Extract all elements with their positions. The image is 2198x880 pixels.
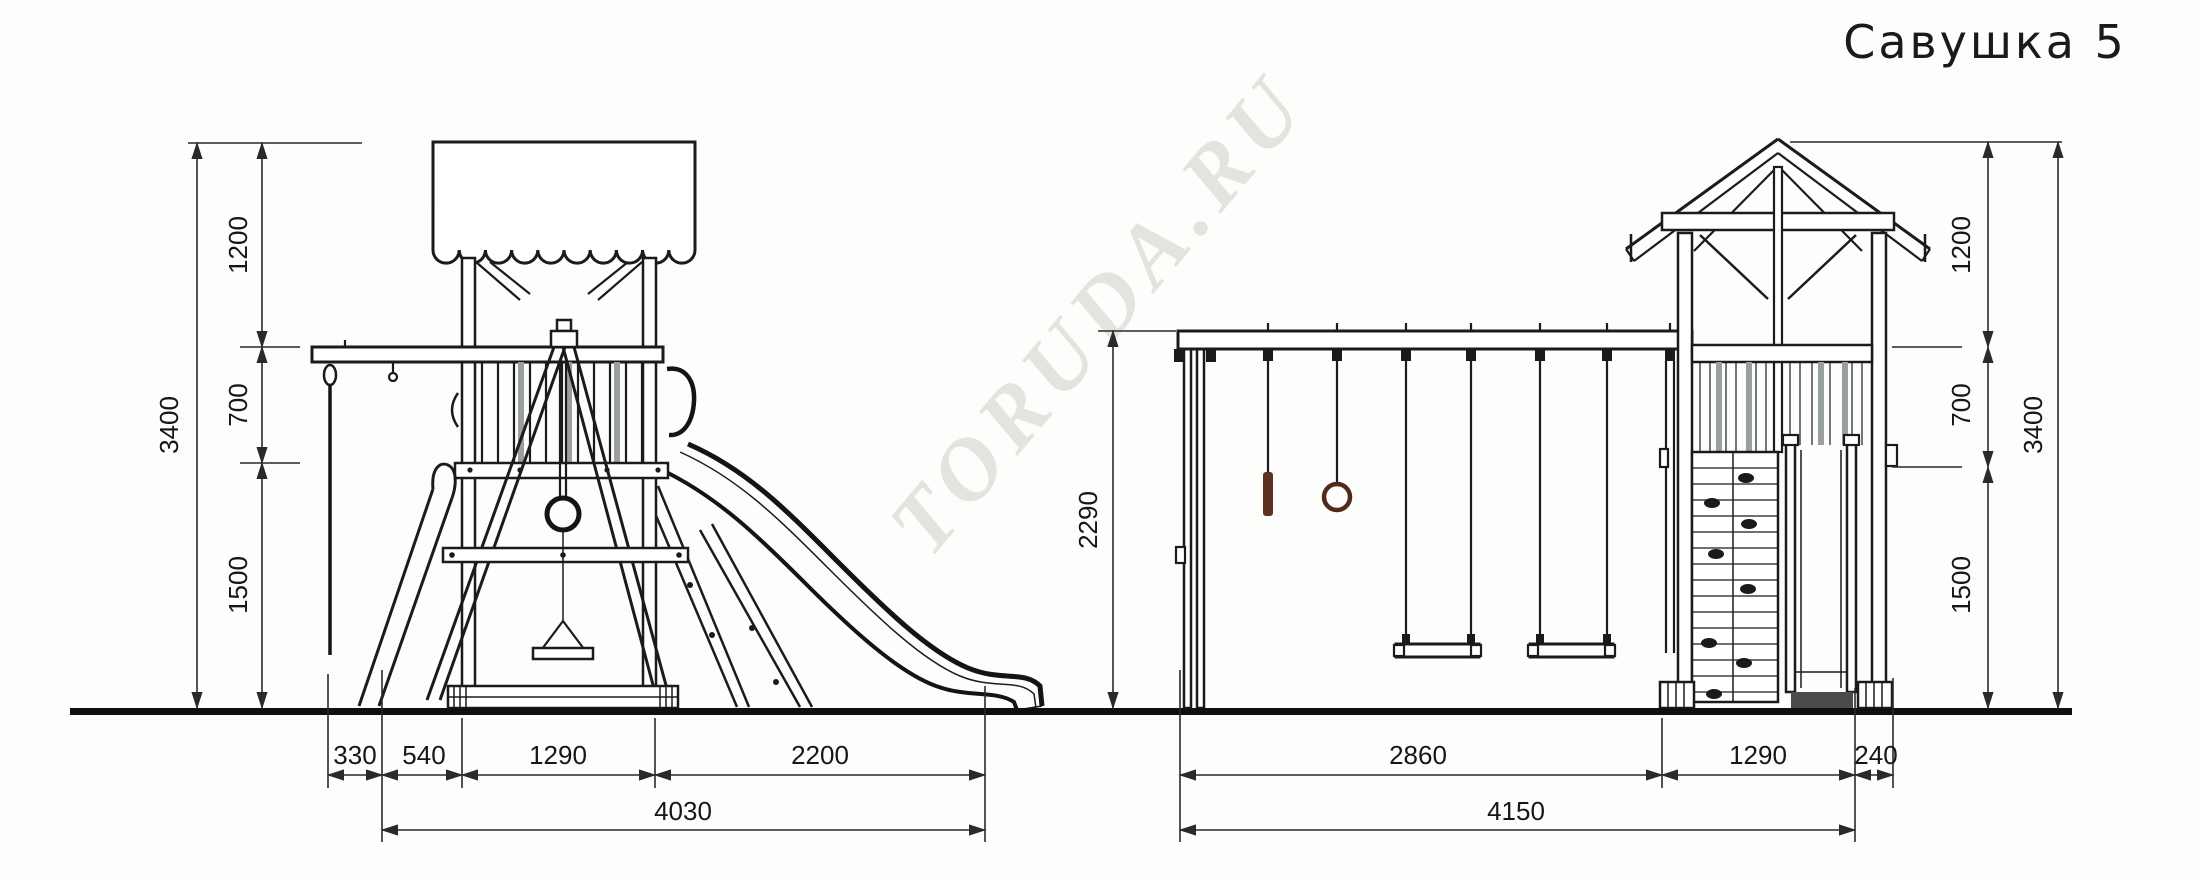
dim-right-tower-width: 1290 bbox=[1729, 740, 1787, 770]
dim-left-tower-width: 1290 bbox=[529, 740, 587, 770]
swing-seat-2 bbox=[1528, 361, 1615, 657]
dim-right-bottom: 1500 bbox=[1946, 556, 1976, 614]
left-structure bbox=[312, 142, 1042, 710]
swing-end-post bbox=[1174, 349, 1216, 708]
drawing-title: Савушка 5 bbox=[1843, 15, 2127, 69]
slide-support-struts bbox=[646, 486, 812, 707]
climbing-wall bbox=[1692, 452, 1778, 702]
dim-swing-section: 2860 bbox=[1389, 740, 1447, 770]
dim-rear-offset: 240 bbox=[1854, 740, 1897, 770]
canopy bbox=[433, 142, 695, 263]
gym-ring bbox=[1324, 361, 1350, 510]
slide-entry-handle bbox=[667, 369, 694, 435]
railing-slats bbox=[455, 362, 668, 478]
fireman-pole bbox=[1660, 361, 1674, 653]
dim-rope-offset: 330 bbox=[333, 740, 376, 770]
dim-left-overall: 4030 bbox=[654, 796, 712, 826]
trapeze-bar bbox=[533, 648, 593, 659]
rope-with-grip bbox=[1263, 361, 1273, 516]
dim-right-overall: 4150 bbox=[1487, 796, 1545, 826]
dim-left-top: 1200 bbox=[223, 216, 253, 274]
trapeze-ring bbox=[547, 498, 579, 530]
dim-left-total: 3400 bbox=[154, 396, 184, 454]
dim-right-total: 3400 bbox=[2018, 396, 2048, 454]
dim-slide-run: 2200 bbox=[791, 740, 849, 770]
dim-left-middle: 700 bbox=[223, 383, 253, 426]
dim-right-top: 1200 bbox=[1946, 216, 1976, 274]
front-slide bbox=[1783, 435, 1859, 710]
climbing-rope bbox=[324, 365, 336, 655]
access-ladder bbox=[359, 464, 455, 706]
dim-ladder-span: 540 bbox=[402, 740, 445, 770]
dim-beam-height: 2290 bbox=[1073, 491, 1103, 549]
dim-right-middle: 700 bbox=[1946, 383, 1976, 426]
tower-base-frame bbox=[448, 686, 678, 708]
swing-beam bbox=[1178, 323, 1692, 361]
dimensions-right-horizontal: 2860 1290 240 4150 bbox=[1180, 670, 1898, 842]
dim-left-bottom: 1500 bbox=[223, 556, 253, 614]
right-structure bbox=[1174, 139, 1930, 710]
ground-line bbox=[70, 708, 2072, 715]
drawing-sheet: TORUDA.RU bbox=[0, 0, 2198, 880]
swing-seat-1 bbox=[1394, 361, 1481, 657]
